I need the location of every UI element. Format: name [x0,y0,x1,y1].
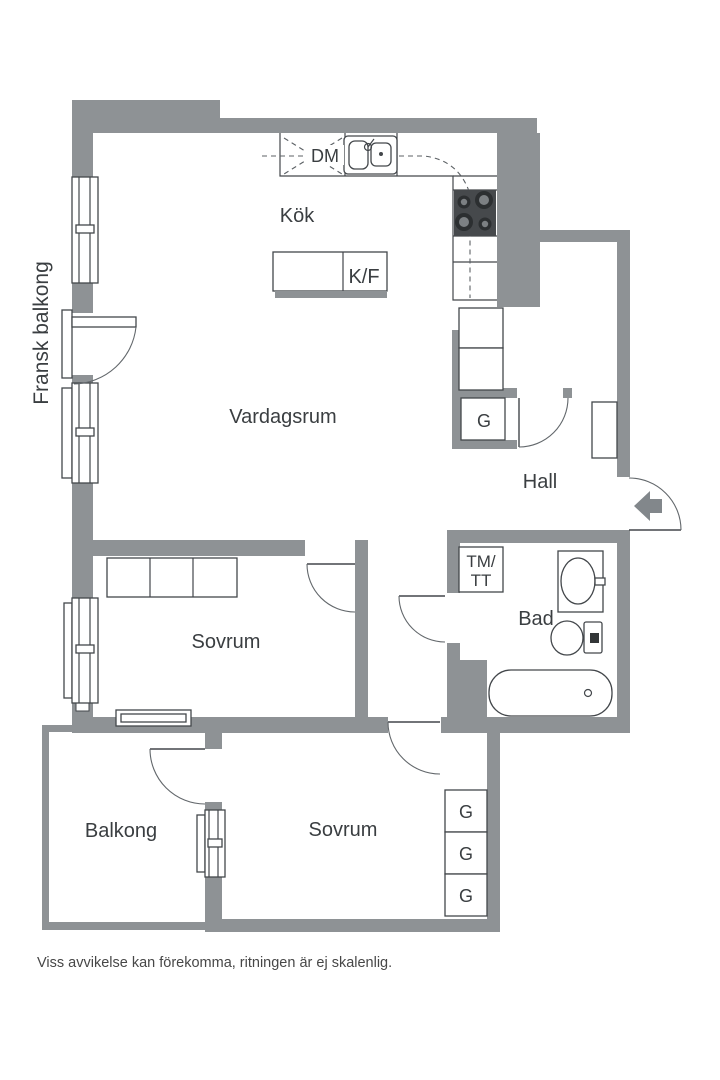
room-label-living-room: Vardagsrum [229,406,336,428]
bathroom-sink [558,551,605,612]
hall-passage-door [519,398,568,447]
closet-label-bedroom2-1: G [459,802,473,822]
appliance-label-dishwasher: DM [311,146,339,166]
hall-wardrobe [592,402,617,458]
room-label-kitchen: Kök [280,205,315,227]
closet-label-hall: G [477,411,491,431]
window-living-room-1 [72,177,98,283]
hall-cabinet-upper [459,308,503,348]
bathroom-door [399,596,445,642]
bedroom-fixtures [107,558,487,916]
kitchen-sink [344,136,397,174]
bedroom1-door [307,564,355,612]
disclaimer-text: Viss avvikelse kan förekomma, ritningen … [37,955,392,971]
stove [454,190,496,236]
window-bedroom1 [64,598,98,703]
toilet [551,621,602,655]
bedroom1-wardrobe [107,558,237,597]
window-living-room-2 [62,383,98,483]
appliance-label-fridge-freezer: K/F [348,266,379,288]
walls [42,100,630,932]
entrance-arrow-icon [634,491,662,521]
floor-plan: Fransk balkong DM Kök K/F Vardagsrum G H… [0,0,720,1080]
closet-label-bedroom2-3: G [459,886,473,906]
french-balcony-door [62,310,136,384]
closet-label-bedroom2-2: G [459,844,473,864]
room-label-french-balcony: Fransk balkong [30,261,53,405]
hall-cabinet-lower [459,348,503,390]
washer-dryer-label-line1: TM/ [466,552,496,571]
bedroom2-door [388,722,440,774]
window-bedroom2-balcony [197,810,225,877]
floor-plan-page: Fransk balkong DM Kök K/F Vardagsrum G H… [0,0,720,1080]
hall-fixtures [459,308,617,592]
bathtub [489,670,612,716]
room-label-bedroom1: Sovrum [192,631,261,653]
room-label-bathroom: Bad [518,608,554,630]
room-label-hall: Hall [523,471,557,493]
room-label-bedroom2: Sovrum [309,819,378,841]
bathroom-fixtures [489,551,612,716]
washer-dryer-label-line2: TT [471,571,492,590]
balcony-door [150,749,205,804]
room-label-balcony: Balkong [85,820,157,842]
radiator [116,710,191,726]
